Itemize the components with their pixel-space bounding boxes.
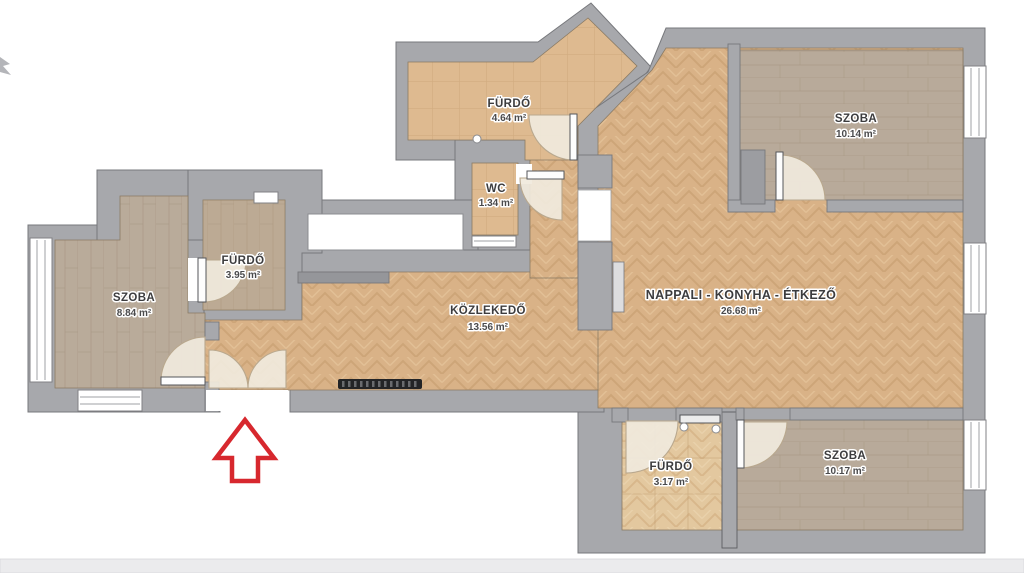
window-right-bottom: [964, 420, 986, 490]
area-furdo-top: 4.64 m²: [492, 113, 527, 124]
wall-szoba-bottomright-top-a: [736, 408, 744, 420]
label-szoba-left: SZOBA: [113, 292, 155, 304]
wall-szoba-bottomright-top-b: [790, 408, 963, 420]
entry-arrow: [216, 420, 274, 481]
wall-szoba-topright-left: [728, 44, 740, 212]
door-leaf-furdo-left: [198, 258, 206, 302]
door-leaf-szoba-left: [161, 377, 205, 385]
area-szoba-topright: 10.14 m²: [836, 129, 877, 140]
wall-furdo-bottom-top-a: [612, 408, 628, 422]
entry-opening: [206, 390, 288, 411]
hinge-dot-b: [712, 425, 720, 433]
wall-szoba-left-right-a: [205, 322, 219, 340]
area-furdo-bottom: 3.17 m²: [654, 477, 689, 488]
label-nappali: NAPPALI - KONYHA - ÉTKEZŐ: [646, 287, 837, 302]
label-furdo-top: FÜRDŐ: [488, 97, 531, 110]
floorplan-drawing: FÜRDŐ 4.64 m² WC 1.34 m² SZOBA 10.14 m² …: [0, 0, 1024, 573]
door-leaf-szoba-topright: [776, 152, 783, 200]
bottom-page-band: [0, 559, 1024, 573]
area-szoba-bottomright: 10.17 m²: [825, 466, 866, 477]
floor-szoba-topright: [740, 50, 963, 200]
window-bottom-left: [78, 390, 142, 411]
wall-corridor-nappali-a: [578, 155, 612, 188]
label-wc: WC: [486, 183, 506, 195]
area-szoba-left: 8.84 m²: [117, 308, 152, 319]
label-kozlekedo: KÖZLEKEDŐ: [450, 304, 526, 317]
watermark-glyph: [0, 57, 11, 75]
floorplan-page: FÜRDŐ 4.64 m² WC 1.34 m² SZOBA 10.14 m² …: [0, 0, 1024, 573]
door-leaf-furdo-top: [570, 114, 577, 160]
label-furdo-bottom: FÜRDŐ: [650, 460, 693, 473]
hinge-dot-a: [680, 423, 688, 431]
pocket-door-panel: [613, 262, 624, 312]
vent-furdo-left: [254, 192, 278, 203]
label-szoba-topright: SZOBA: [835, 113, 877, 125]
label-szoba-bottomright: SZOBA: [824, 450, 866, 462]
label-furdo-left: FÜRDŐ: [222, 254, 265, 267]
window-right-middle: [964, 243, 986, 314]
wall-corridor-nappali-b: [578, 242, 612, 330]
window-right-top: [964, 66, 986, 138]
door-leaf-wc: [527, 171, 564, 179]
area-kozlekedo: 13.56 m²: [468, 322, 509, 333]
door-leaf-szoba-bottomright: [737, 420, 744, 468]
door-stop-dot: [473, 135, 481, 143]
wall-szoba-topright-bottom-b: [827, 200, 963, 212]
wall-furdo-szoba-bottom: [722, 412, 737, 548]
light-shaft: [308, 214, 463, 250]
hallway-console: [298, 272, 389, 283]
area-wc: 1.34 m²: [479, 198, 514, 209]
fixtures: [338, 379, 422, 389]
kitchen-cabinet: [741, 150, 765, 204]
window-left: [30, 238, 52, 382]
shower-glass-panel: [680, 415, 720, 423]
area-nappali: 26.68 m²: [721, 306, 762, 317]
corridor-nappali-opening: [578, 190, 611, 241]
area-furdo-left: 3.95 m²: [226, 270, 261, 281]
